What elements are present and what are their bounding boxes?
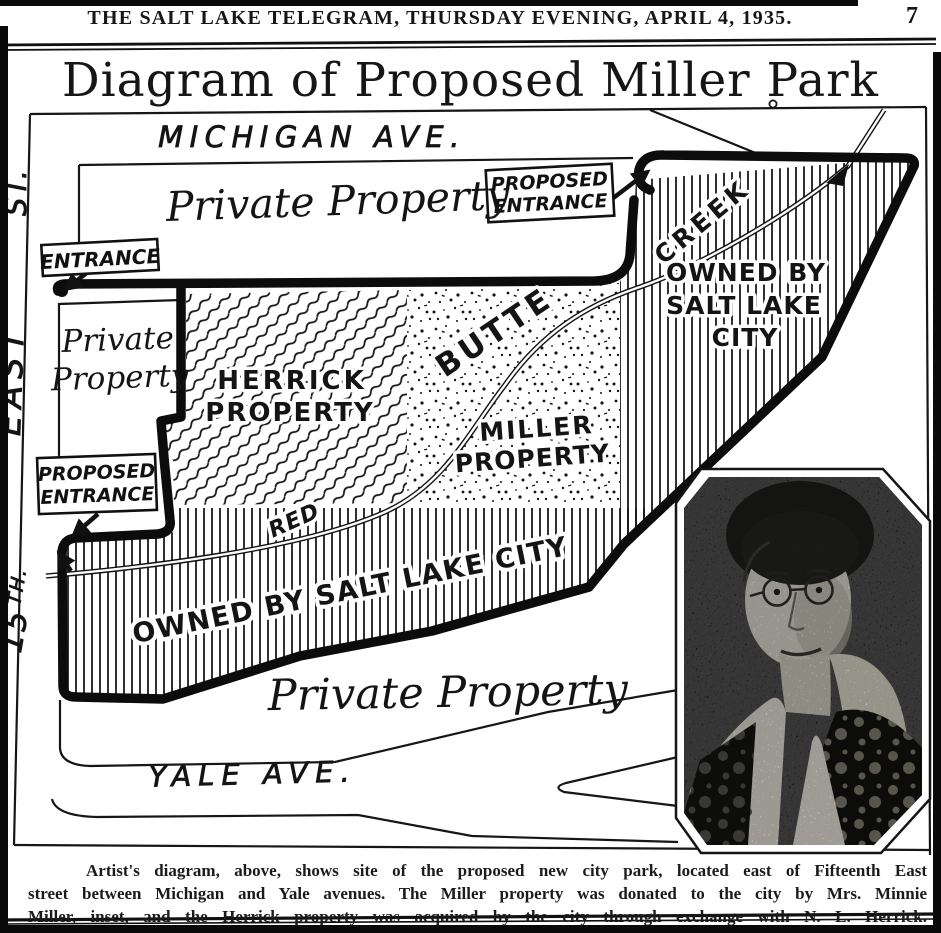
scan-edge-right (933, 52, 941, 933)
photo-halftone-grain (684, 477, 924, 847)
owned-by-city-east-line3: CITY (712, 323, 779, 352)
road-fifteenth-east-edge (60, 700, 90, 766)
private-property-west-line1: Private (60, 320, 175, 360)
herrick-property-line2: PROPERTY (205, 398, 374, 428)
street-label-yale-ave: YALE AVE. (148, 754, 357, 793)
inset-portrait-photo (676, 469, 930, 853)
entrance-box: ENTRANCE (39, 239, 161, 276)
masthead: THE SALT LAKE TELEGRAM, THURSDAY EVENING… (0, 7, 880, 30)
proposed-entrance-west-arrow (75, 514, 98, 534)
private-property-south-label: Private Property (266, 665, 629, 721)
park-diagram-map: ENTRANCE PROPOSED ENTRANCE PROPOSED ENTR… (0, 0, 941, 933)
proposed-entrance-west-line1: PROPOSED (38, 460, 156, 486)
owned-by-city-east-line1: OWNED BY (666, 258, 826, 287)
scan-edge-top (0, 0, 858, 6)
scan-edge-left (0, 26, 8, 933)
masthead-rule (0, 39, 936, 50)
owned-by-city-east-line2: SALT LAKE (666, 291, 822, 320)
proposed-entrance-west-box: PROPOSED ENTRANCE (37, 454, 157, 514)
herrick-property-line1: HERRICK (217, 366, 366, 396)
caption-line-2: street between Michigan and Yale avenues… (28, 882, 927, 905)
road-yale-south-edge (52, 799, 678, 842)
private-property-north-label: Private Property (164, 171, 511, 231)
caption: Artist's diagram, above, shows site of t… (28, 859, 927, 929)
private-property-west-line2: Property (49, 358, 189, 399)
road-yale-fork (558, 757, 678, 806)
proposed-entrance-west-line2: ENTRANCE (40, 483, 155, 509)
caption-line-1: Artist's diagram, above, shows site of t… (28, 859, 927, 882)
street-label-michigan-ave: MICHIGAN AVE. (158, 120, 466, 154)
map-frame-top (30, 107, 926, 114)
road-northeast-diagonal (650, 110, 758, 154)
map-frame-left (14, 114, 30, 845)
newspaper-page: ENTRANCE PROPOSED ENTRANCE PROPOSED ENTR… (0, 0, 941, 933)
page-number: 7 (894, 3, 930, 30)
caption-line-3: Miller, inset, and the Herrick property … (28, 905, 927, 928)
article-title: Diagram of Proposed Miller Park (0, 53, 941, 108)
